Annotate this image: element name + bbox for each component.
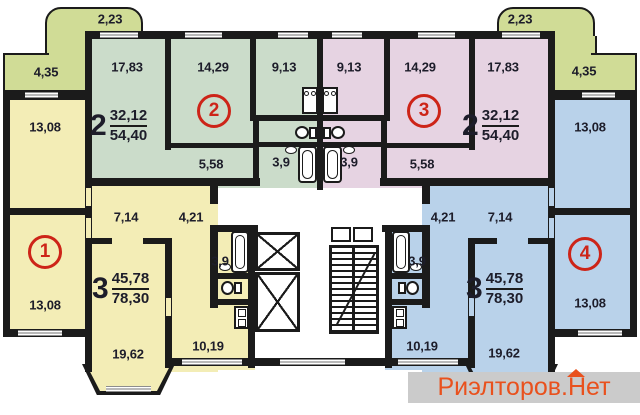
room-label: 13,08 xyxy=(574,120,606,135)
wall xyxy=(210,186,218,204)
room-label: 5,58 xyxy=(410,157,435,172)
wall xyxy=(85,238,112,244)
window xyxy=(185,32,222,38)
total-area: 54,40 xyxy=(482,125,520,145)
rooms-count: 3 xyxy=(466,274,483,304)
wall xyxy=(213,299,253,305)
stove xyxy=(302,87,318,114)
room-label: 3,9 xyxy=(340,155,357,170)
room-label: 3,9 xyxy=(408,254,425,269)
window xyxy=(25,92,58,98)
apartment-number-badge: 1 xyxy=(28,235,62,269)
wall xyxy=(591,53,637,55)
toilet-tank xyxy=(234,282,242,294)
door-opening xyxy=(86,188,91,206)
window xyxy=(278,32,308,38)
toilet-tank xyxy=(309,127,317,139)
wall xyxy=(380,178,555,186)
wall xyxy=(384,39,390,121)
window xyxy=(582,92,615,98)
balcony-label: 2,23 xyxy=(508,12,533,27)
room-label: 10,19 xyxy=(406,339,438,354)
apartment-area-label: 2 32,12 54,40 xyxy=(90,108,147,144)
window xyxy=(18,330,62,336)
wall xyxy=(385,228,392,368)
wall xyxy=(635,53,637,92)
wall xyxy=(171,143,256,148)
total-area: 78,30 xyxy=(112,288,150,308)
toilet xyxy=(221,281,234,295)
area-fraction: 32,12 54,40 xyxy=(482,108,520,144)
balcony-label: 4,35 xyxy=(34,65,59,80)
wall xyxy=(213,273,253,279)
watermark-bar: Риэлторов.Нет xyxy=(408,372,640,403)
total-area: 78,30 xyxy=(486,288,524,308)
room-label: 19,62 xyxy=(488,346,520,361)
toilet xyxy=(406,281,419,295)
room-label: 13,08 xyxy=(574,296,606,311)
bathtub xyxy=(323,146,342,183)
wall xyxy=(253,115,259,186)
wall xyxy=(381,115,387,186)
wall xyxy=(528,238,555,244)
watermark-text: Риэлторов.Нет xyxy=(437,373,610,402)
wall xyxy=(3,208,88,215)
toilet xyxy=(331,126,345,139)
apartment-number-badge: 3 xyxy=(407,94,441,128)
ventilation-shaft xyxy=(353,227,373,242)
window xyxy=(502,32,540,38)
window xyxy=(578,330,622,336)
wall xyxy=(422,186,430,204)
area-fraction: 45,78 78,30 xyxy=(112,271,150,307)
window xyxy=(106,386,151,392)
apartment-area-label: 2 32,12 54,40 xyxy=(462,108,519,144)
door-opening xyxy=(549,188,554,206)
room-label: 4,21 xyxy=(179,210,204,225)
sink xyxy=(285,146,297,154)
living-area: 45,78 xyxy=(486,271,524,288)
rooms-count: 3 xyxy=(92,274,109,304)
rooms-count: 2 xyxy=(462,111,479,141)
room-label: 7,14 xyxy=(488,210,513,225)
toilet-tank xyxy=(398,282,406,294)
elevator-shaft xyxy=(255,232,300,271)
room-label: 9,13 xyxy=(272,60,297,75)
wall xyxy=(384,143,469,148)
floor-plan: 2,23 4,35 17,83 14,29 9,13 13,08 5,58 3,… xyxy=(0,0,640,415)
wall xyxy=(85,31,555,39)
kitchen-sink xyxy=(392,306,407,329)
room-label: 4,21 xyxy=(431,210,456,225)
room-label: 13,08 xyxy=(29,298,61,313)
wall xyxy=(250,39,256,121)
room-label: 14,29 xyxy=(404,60,436,75)
room-label: 13,08 xyxy=(29,120,61,135)
watermark-roof-icon xyxy=(567,369,585,377)
area-fraction: 45,78 78,30 xyxy=(486,271,524,307)
rooms-count: 2 xyxy=(90,111,107,141)
area-fraction: 32,12 54,40 xyxy=(110,108,148,144)
window xyxy=(100,32,138,38)
wall xyxy=(248,228,255,368)
entrance-door xyxy=(280,359,345,365)
wall xyxy=(552,208,637,215)
elevator-shaft xyxy=(255,272,300,332)
toilet-tank xyxy=(323,127,331,139)
balcony-label: 4,35 xyxy=(572,64,597,79)
apartment-number-badge: 2 xyxy=(197,94,231,128)
sink xyxy=(343,146,355,154)
living-area: 45,78 xyxy=(112,271,150,288)
room-label: 3,9 xyxy=(211,254,228,269)
room-label: 14,29 xyxy=(197,60,229,75)
total-area: 54,40 xyxy=(110,125,148,145)
door-opening xyxy=(549,218,554,238)
toilet xyxy=(295,126,309,139)
wall xyxy=(320,115,384,121)
wall xyxy=(387,273,427,279)
window xyxy=(182,359,242,365)
living-area: 32,12 xyxy=(482,108,520,125)
window xyxy=(332,32,362,38)
window xyxy=(418,32,455,38)
room-label: 10,19 xyxy=(192,339,224,354)
apartment-number-badge: 4 xyxy=(568,237,602,271)
bathtub xyxy=(231,231,249,273)
wall xyxy=(165,39,171,150)
room-label: 3,9 xyxy=(272,155,289,170)
balcony-label: 2,23 xyxy=(98,12,123,27)
door-opening xyxy=(166,298,171,316)
window xyxy=(398,359,458,365)
apartment-area-label: 3 45,78 78,30 xyxy=(92,271,149,307)
kitchen-sink xyxy=(234,306,249,329)
living-area: 32,12 xyxy=(110,108,148,125)
wall xyxy=(387,299,427,305)
room-label: 9,13 xyxy=(337,60,362,75)
room-label: 17,83 xyxy=(487,60,519,75)
room-label: 7,14 xyxy=(114,210,139,225)
room-label: 19,62 xyxy=(112,347,144,362)
ventilation-shaft xyxy=(331,227,351,242)
wall xyxy=(3,53,5,92)
wall xyxy=(256,115,320,121)
wall xyxy=(3,53,49,55)
stove xyxy=(322,87,338,114)
door-opening xyxy=(86,218,91,238)
apartment-area-label: 3 45,78 78,30 xyxy=(466,271,523,307)
bathtub xyxy=(298,146,317,183)
room-label: 17,83 xyxy=(111,60,143,75)
room-label: 5,58 xyxy=(199,157,224,172)
wall xyxy=(85,178,260,186)
